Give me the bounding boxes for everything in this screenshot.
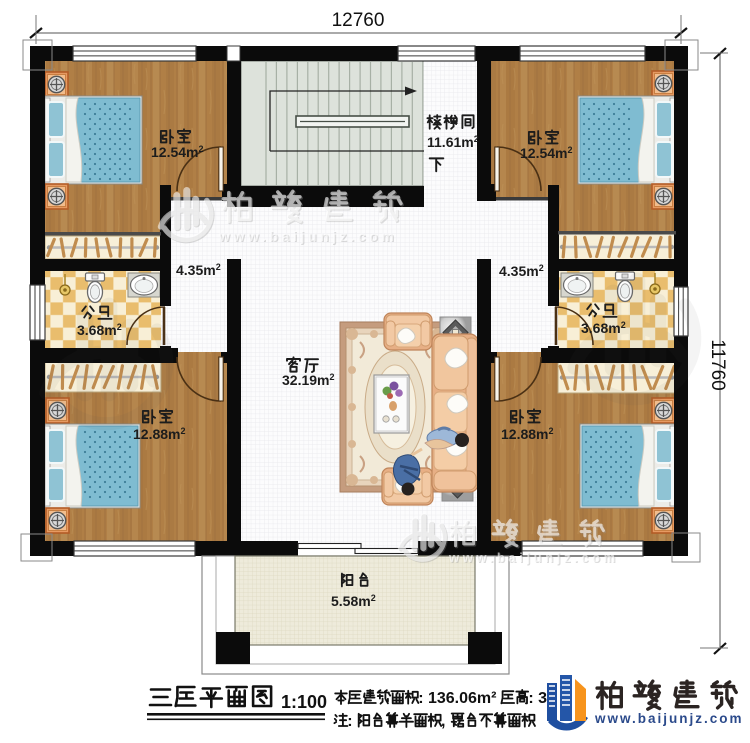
svg-text:32.19m2: 32.19m2 [282,372,335,388]
svg-text:1:100: 1:100 [281,692,327,712]
svg-text:12.88m2: 12.88m2 [133,426,186,442]
svg-text:www.baijunjz.com: www.baijunjz.com [448,550,619,565]
svg-text:4.35m2: 4.35m2 [499,263,544,279]
svg-text:: 136.06m²: : 136.06m² [418,690,496,707]
svg-text:11760: 11760 [707,339,728,390]
svg-text:12.54m2: 12.54m2 [520,145,573,161]
svg-text:5.58m2: 5.58m2 [331,593,376,609]
svg-text:12.54m2: 12.54m2 [151,144,204,160]
svg-text:12.88m2: 12.88m2 [501,426,554,442]
svg-text:11.61m2: 11.61m2 [427,134,479,150]
svg-text:www.baijunjz.com: www.baijunjz.com [594,711,744,726]
svg-text:www.baijunjz.com: www.baijunjz.com [218,228,397,244]
svg-text:,: , [441,713,445,730]
svg-text:4.35m2: 4.35m2 [176,262,221,278]
svg-text:12760: 12760 [332,10,385,31]
svg-text::: : [347,713,352,730]
svg-text:: 3: : 3 [528,690,547,707]
